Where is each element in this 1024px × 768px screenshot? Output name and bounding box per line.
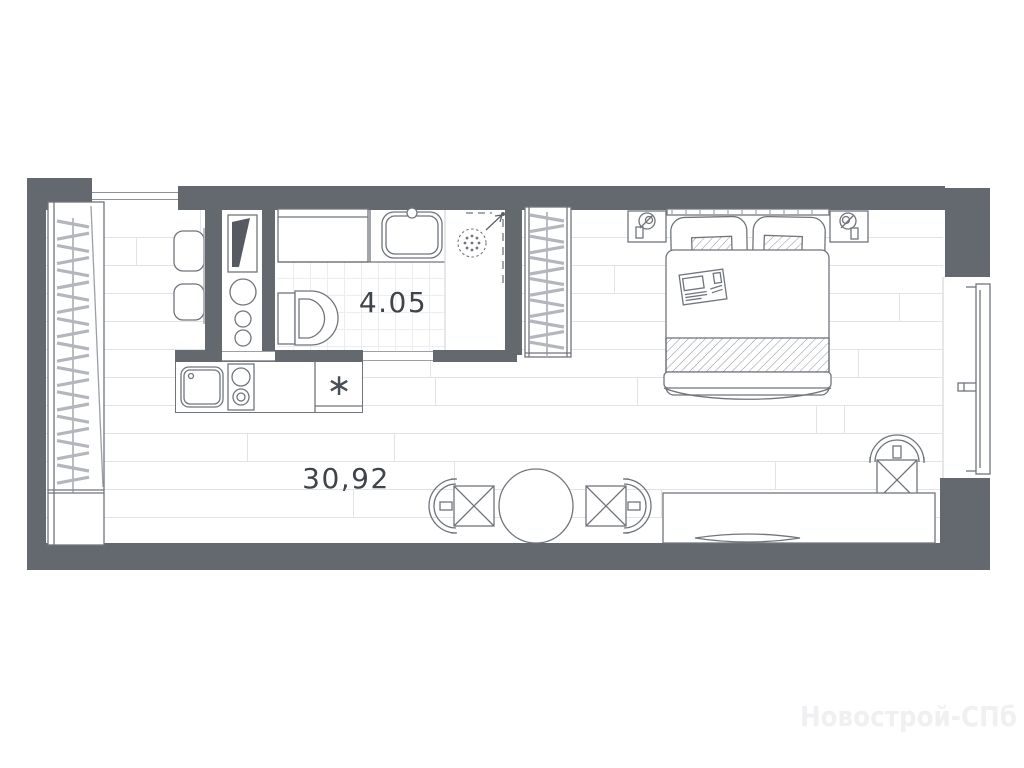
desk [663,493,935,543]
blanket-band [666,338,829,372]
floorplan: 4.05 30,92 ∗ Новострой-СПб [0,0,1024,768]
shower-drain-icon [458,229,486,257]
nightstand-left [628,211,666,242]
window-right [943,277,990,478]
watermark: Новострой-СПб [800,700,997,733]
living-room-area-label: 30,92 [296,462,396,495]
desk-chair [870,435,924,500]
riser-pipe-icon [235,311,251,327]
dining-table [499,469,573,543]
wardrobe-left [48,202,104,545]
window-handle [958,383,964,391]
plan-art [0,0,1024,768]
footboard [664,372,831,388]
wardrobe-right [525,207,571,357]
toilet [278,291,338,345]
headboard [667,209,829,215]
dining-chair-left [429,479,494,533]
kitchen-sink [181,367,223,407]
fridge-icon: ∗ [324,371,354,401]
riser-pipe-icon [230,279,256,305]
utility-shaft [228,215,257,346]
hob [228,364,254,410]
breakfast-tray [679,269,727,305]
hallway-poufs [174,228,204,324]
riser-pipe-icon [235,330,251,346]
bed [664,209,831,399]
nightstand-right [830,211,868,242]
dining-chair-right [586,479,651,533]
washing-machine [278,209,368,262]
bathroom-area-label: 4.05 [348,286,438,319]
